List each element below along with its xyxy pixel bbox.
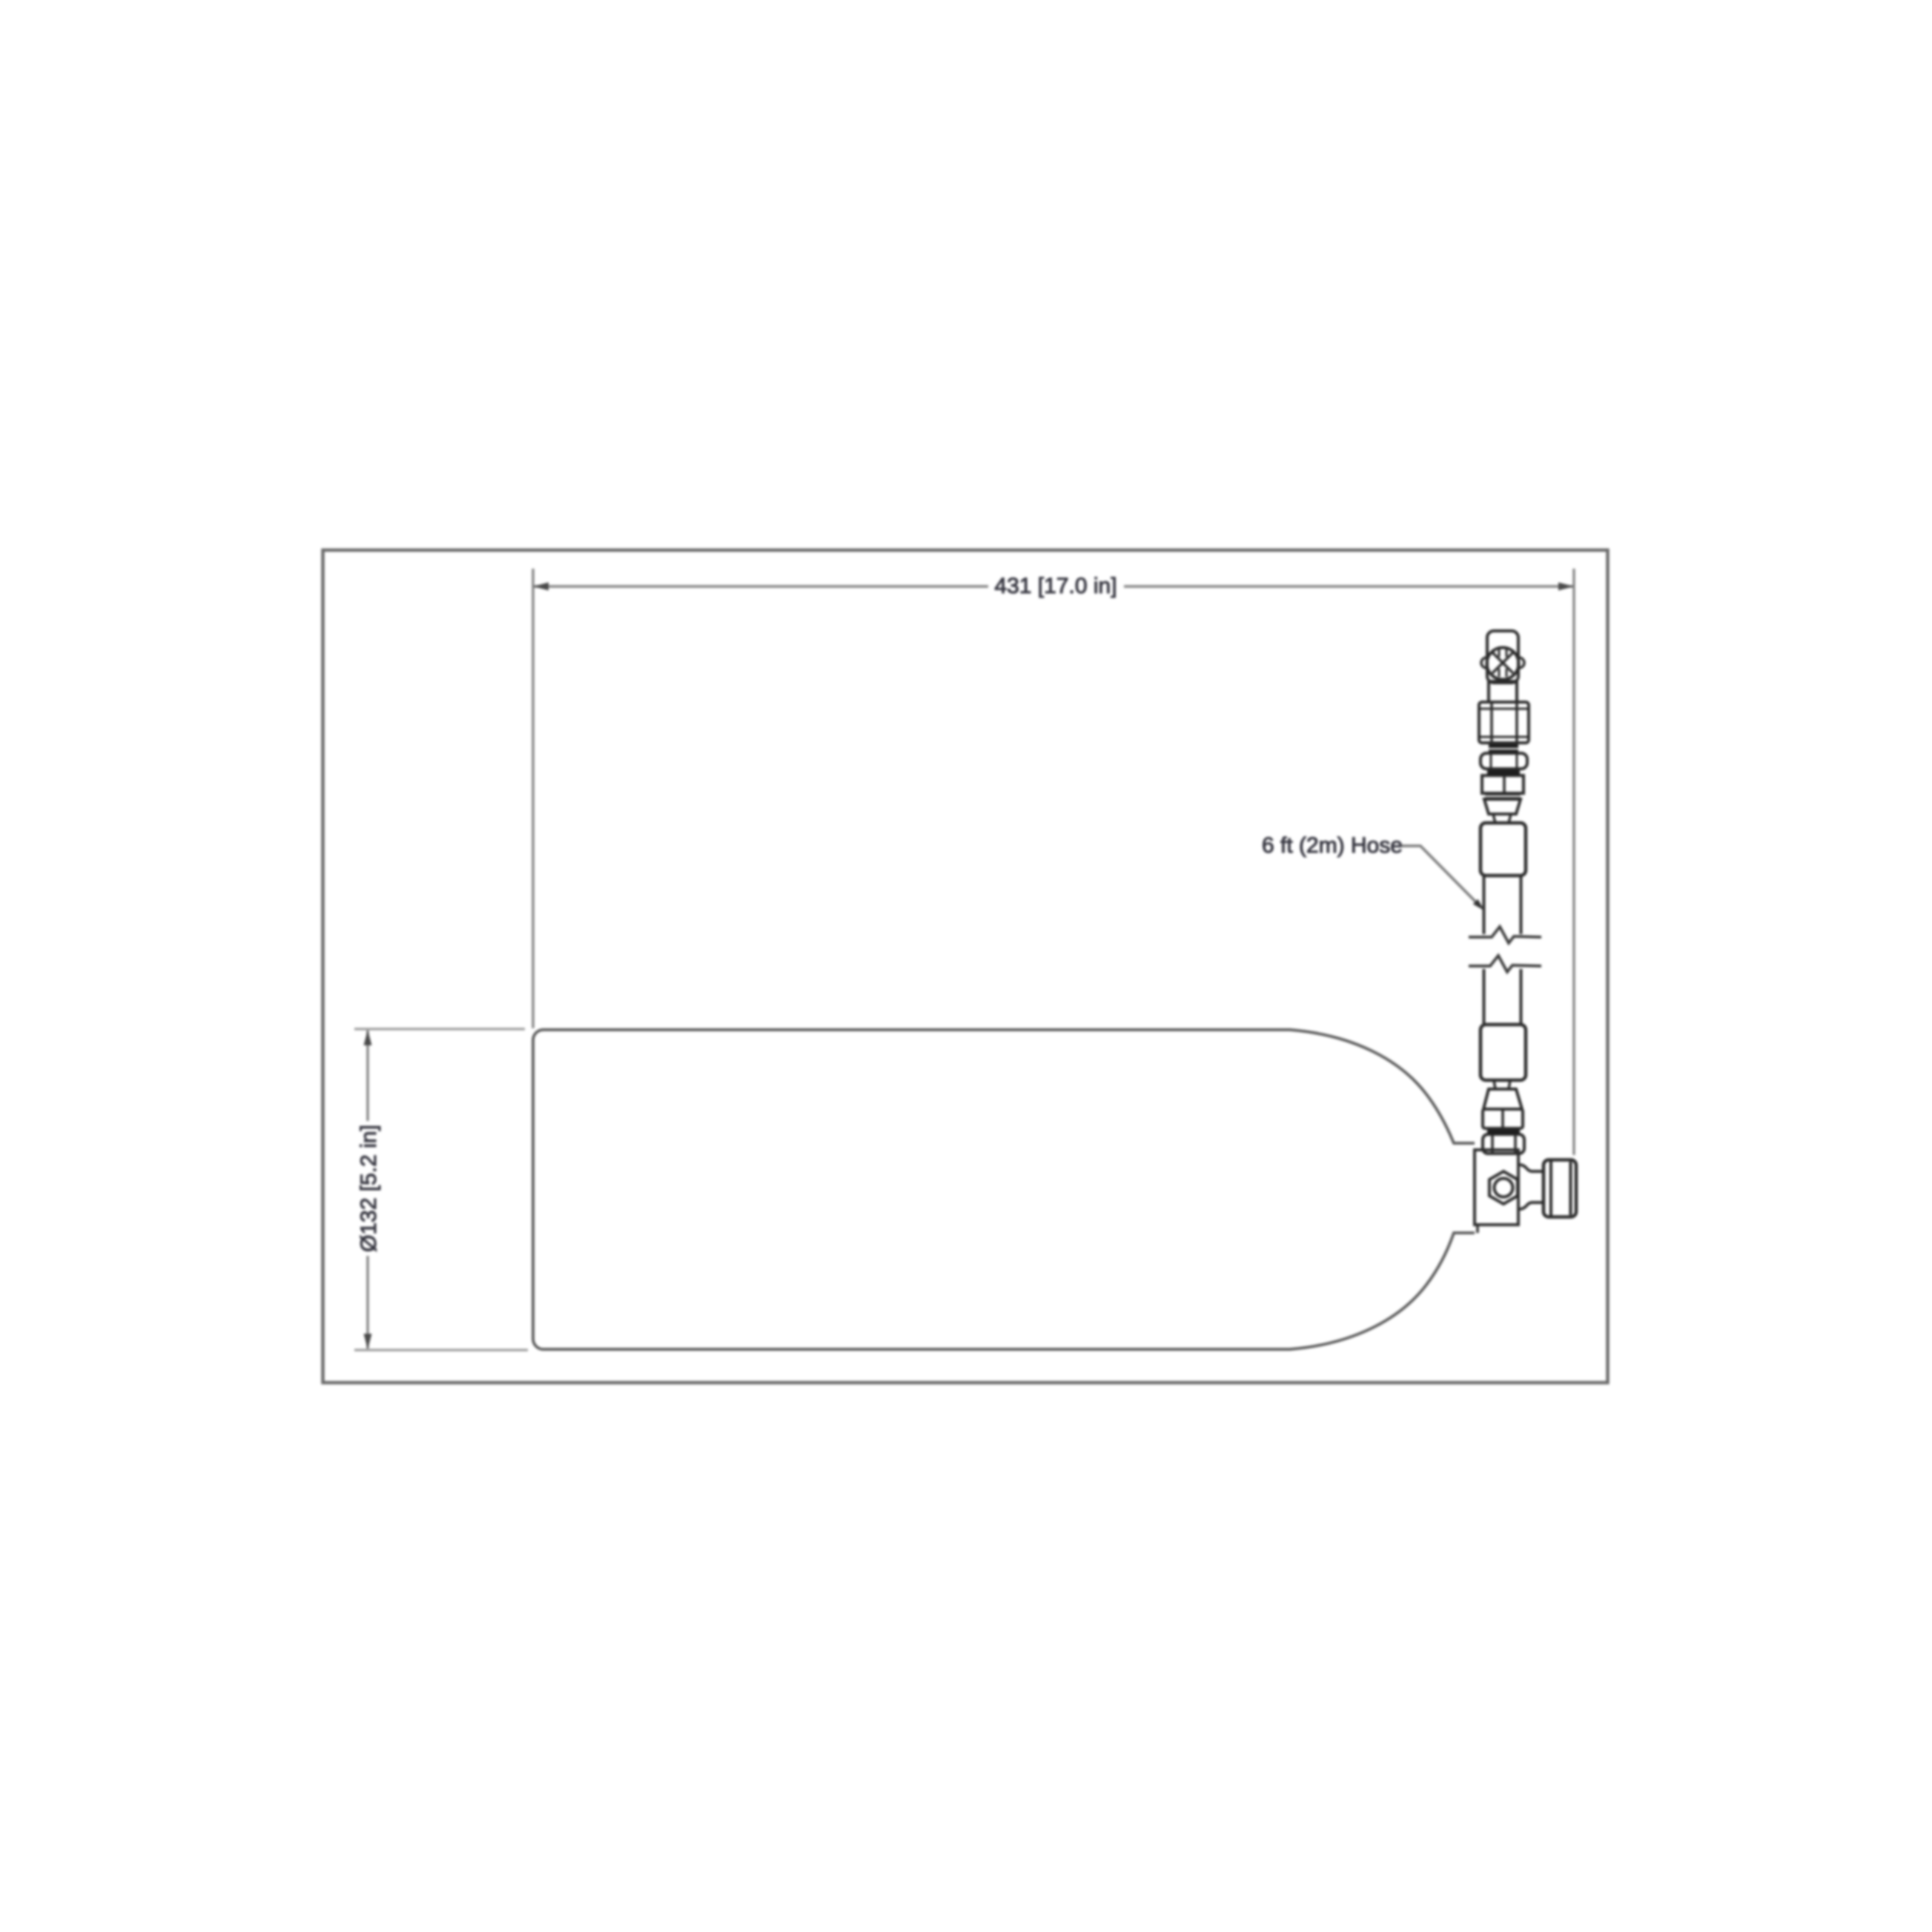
svg-text:6 ft (2m) Hose: 6 ft (2m) Hose [1262,833,1403,858]
svg-text:Ø132 [5.2 in]: Ø132 [5.2 in] [357,1125,381,1252]
svg-text:431 [17.0 in]: 431 [17.0 in] [994,574,1116,598]
